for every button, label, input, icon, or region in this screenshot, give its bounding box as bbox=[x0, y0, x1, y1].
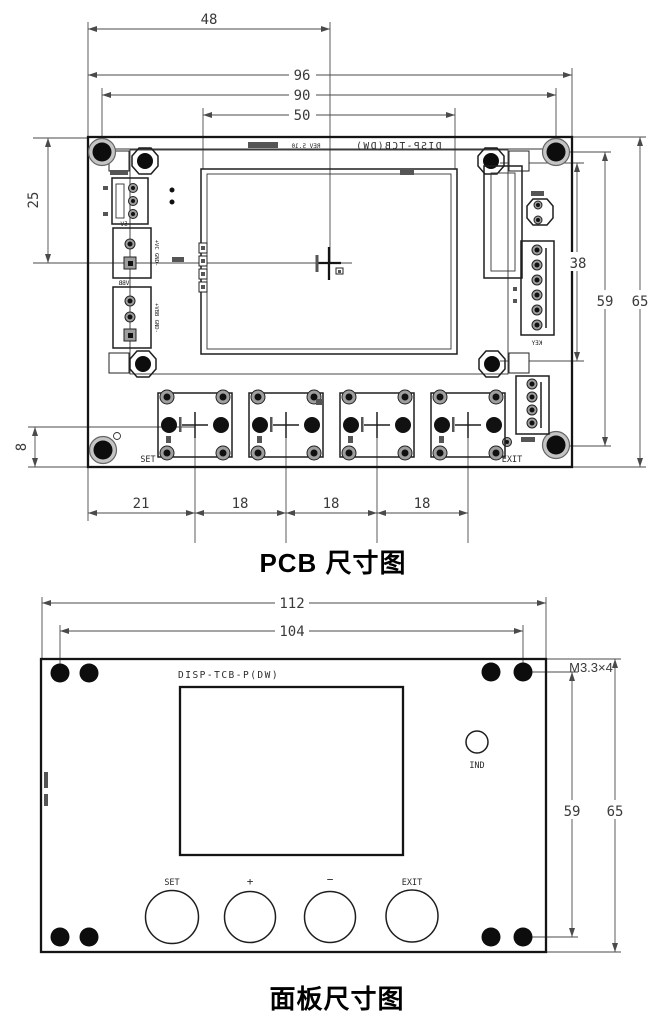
panel-drawing: DISP-TCB-P(DW) IND SET + − bbox=[41, 595, 628, 1014]
panel-extension-lines bbox=[42, 597, 621, 952]
panel-button-set-circle bbox=[146, 891, 199, 944]
hex-nut bbox=[478, 148, 504, 174]
connector-bus bbox=[516, 376, 549, 442]
dim-38: 38 bbox=[570, 256, 587, 272]
dim-25: 25 bbox=[26, 192, 42, 209]
dim-96: 96 bbox=[294, 68, 311, 84]
mounting-hole bbox=[89, 139, 116, 166]
dim-65-pcb: 65 bbox=[632, 294, 649, 310]
pcb-drawing: DISP-TCB(DW) REV 5.10 bbox=[14, 12, 653, 578]
pcb-set-label: SET bbox=[140, 455, 155, 465]
panel-button-set-label: SET bbox=[164, 878, 179, 888]
indicator-label: IND bbox=[469, 761, 484, 771]
dim-104: 104 bbox=[279, 624, 304, 640]
mounting-hole bbox=[543, 432, 570, 459]
dim-90: 90 bbox=[294, 88, 311, 104]
hex-nut bbox=[479, 351, 505, 377]
mounting-hole bbox=[482, 663, 501, 682]
panel-outline bbox=[41, 659, 546, 952]
panel-buttons: SET + − EXIT bbox=[146, 873, 439, 944]
mounting-hole bbox=[514, 663, 533, 682]
pcb-exit-label: EXIT bbox=[502, 455, 522, 465]
dim-48: 48 bbox=[201, 12, 218, 28]
exit-test-pad bbox=[503, 438, 512, 447]
connector-5v: 5V +VC GND- bbox=[113, 221, 159, 278]
panel-button-minus[interactable]: − bbox=[305, 873, 356, 943]
conn-key-label: KEY bbox=[531, 340, 542, 347]
connector-vbb: VBB +VBB GND- bbox=[113, 280, 159, 348]
buzzer-component bbox=[527, 191, 553, 225]
tact-switches bbox=[158, 390, 505, 460]
conn-vbb-pin-text: +VBB GND- bbox=[153, 303, 159, 333]
panel-button-plus[interactable]: + bbox=[225, 875, 276, 943]
panel-button-set[interactable]: SET bbox=[146, 878, 199, 944]
mounting-hole bbox=[543, 139, 570, 166]
conn-5v-label: 5V bbox=[120, 221, 128, 228]
screw-spec: M3.3×4 bbox=[569, 660, 613, 675]
pcb-title: PCB 尺寸图 bbox=[259, 548, 406, 578]
dim-59-pcb: 59 bbox=[597, 294, 614, 310]
lcd-display-window bbox=[172, 169, 457, 354]
panel-dimension-texts: 112 104 M3.3×4 59 65 bbox=[275, 595, 628, 820]
dim-21: 21 bbox=[133, 496, 150, 512]
mounting-hole bbox=[514, 928, 533, 947]
mounting-hole bbox=[90, 433, 121, 464]
dim-18-c: 18 bbox=[414, 496, 431, 512]
mounting-hole bbox=[80, 664, 99, 683]
panel-button-exit-label: EXIT bbox=[402, 878, 422, 888]
conn-vbb-label: VBB bbox=[118, 280, 129, 287]
indicator-led bbox=[466, 731, 488, 753]
mounting-hole bbox=[51, 928, 70, 947]
dim-50: 50 bbox=[294, 108, 311, 124]
panel-button-minus-label: − bbox=[327, 873, 334, 886]
panel-button-plus-label: + bbox=[247, 875, 254, 888]
hex-nut bbox=[130, 351, 156, 377]
mounting-hole bbox=[80, 928, 99, 947]
panel-button-exit[interactable]: EXIT bbox=[386, 878, 438, 942]
indicator: IND bbox=[466, 731, 488, 771]
technical-drawing-page: DISP-TCB(DW) REV 5.10 bbox=[0, 0, 663, 1019]
silkscreen-model-text: DISP-TCB(DW) bbox=[355, 141, 442, 152]
backlight-connector bbox=[484, 166, 522, 278]
dim-65-panel: 65 bbox=[607, 804, 624, 820]
silkscreen-rev-text: REV 5.10 bbox=[291, 143, 320, 150]
mounting-hole bbox=[51, 664, 70, 683]
panel-mounting-holes bbox=[51, 663, 533, 947]
dim-8: 8 bbox=[14, 443, 30, 451]
panel-lcd-window bbox=[180, 687, 403, 855]
connector-key: KEY bbox=[513, 241, 554, 347]
connector-ext bbox=[103, 170, 175, 224]
panel-button-plus-circle bbox=[225, 892, 276, 943]
silkscreen-char-column bbox=[199, 243, 207, 292]
dim-59-panel: 59 bbox=[564, 804, 581, 820]
mounting-hole bbox=[482, 928, 501, 947]
dim-18-a: 18 bbox=[232, 496, 249, 512]
panel-dimension-lines bbox=[42, 600, 618, 952]
conn-5v-pin-text: +VC GND- bbox=[153, 240, 159, 267]
pcb-mounting-holes bbox=[89, 139, 570, 464]
hex-nut bbox=[132, 148, 158, 174]
panel-title: 面板尺寸图 bbox=[269, 984, 404, 1014]
panel-side-marks bbox=[44, 772, 48, 806]
dim-18-b: 18 bbox=[323, 496, 340, 512]
center-crosshair bbox=[316, 247, 344, 280]
panel-button-exit-circle bbox=[386, 890, 438, 942]
dim-112: 112 bbox=[279, 596, 304, 612]
panel-button-minus-circle bbox=[305, 892, 356, 943]
panel-model-text: DISP-TCB-P(DW) bbox=[178, 670, 279, 681]
